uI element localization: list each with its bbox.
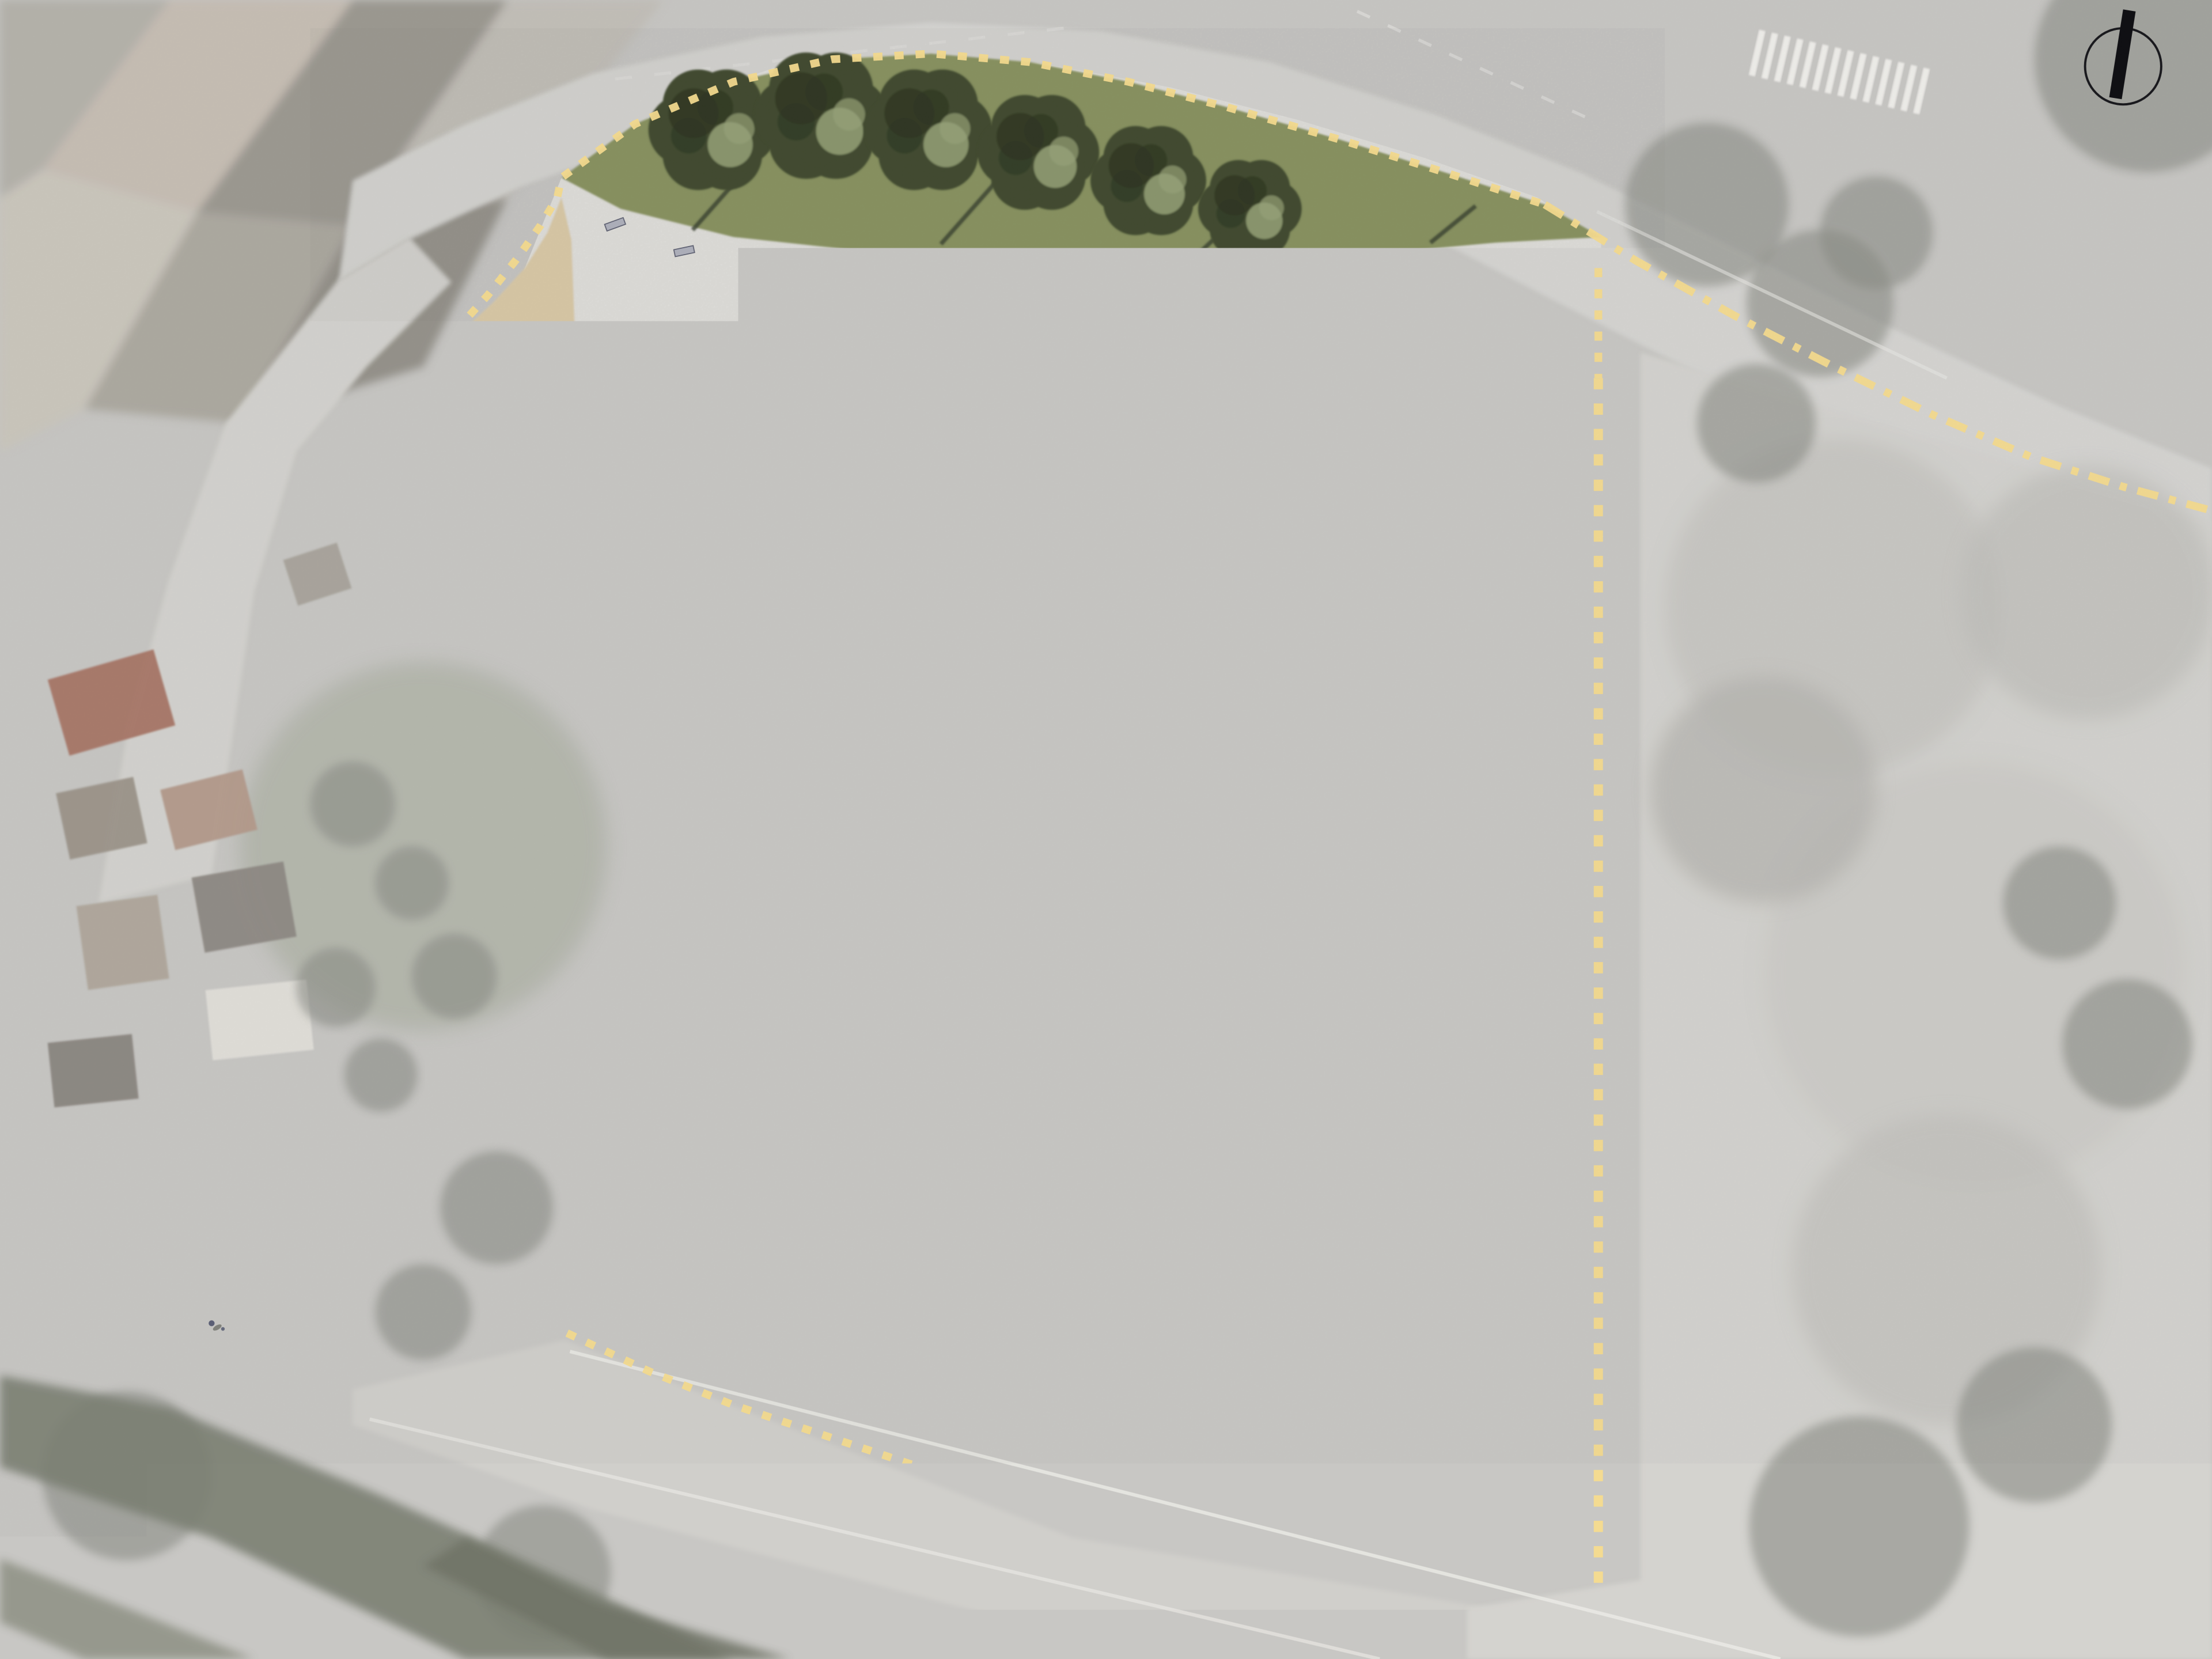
site-plan-canvas	[0, 0, 2212, 1659]
photo-grain	[0, 0, 2212, 1659]
site-plan-page	[0, 0, 2212, 1659]
